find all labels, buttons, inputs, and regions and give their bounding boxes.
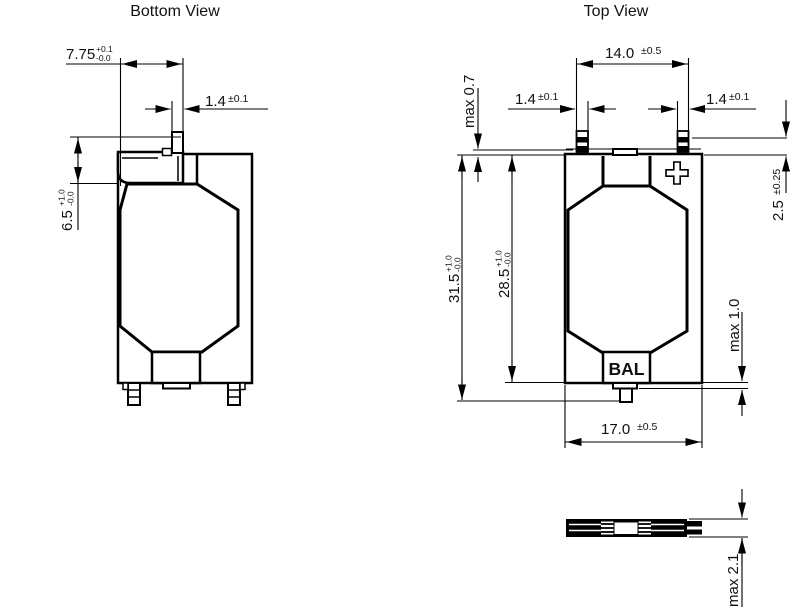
dim-label: 1.4 <box>205 93 226 110</box>
bv-tab-notch <box>163 149 172 156</box>
dim-label-rotated: 28.5 +1.0 -0.0 <box>494 250 514 298</box>
dim-label: 28.5 <box>496 269 513 298</box>
tv-body-outline <box>565 154 702 383</box>
dim-label: 31.5 <box>446 274 463 303</box>
dim-label-rotated: max 2.1 <box>725 554 742 607</box>
dim-label: max 2.1 <box>725 554 742 607</box>
bottom-view-title: Bottom View <box>130 3 220 20</box>
bal-pin <box>620 389 632 403</box>
dim-label: 1.4 <box>515 91 536 108</box>
dim-tolerance: ±0.1 <box>729 91 750 103</box>
side-view-group: max 2.1 <box>566 489 748 607</box>
bv-pin-left <box>128 383 140 405</box>
top-view-title: Top View <box>584 3 649 20</box>
dim-label-rotated: 2.5 ±0.25 <box>770 169 787 221</box>
dim-tolerance: ±0.1 <box>538 91 559 103</box>
bottom-view-group <box>118 132 252 405</box>
pin-stripe <box>678 146 689 152</box>
dim-label: 2.5 <box>770 200 787 221</box>
bv-seal-rect <box>152 352 200 383</box>
sv-pin-bottom <box>687 530 702 535</box>
bv-pin-notch-left <box>123 383 128 390</box>
dim-label: 14.0 <box>605 45 634 62</box>
dim-tolerance-minus: -0.0 <box>96 53 111 63</box>
dim-label: 1.4 <box>706 91 727 108</box>
dim-tolerance: ±0.5 <box>641 45 662 57</box>
bv-bottom-tab <box>163 383 190 389</box>
dim-tolerance: ±0.25 <box>771 169 783 195</box>
dim-label-rotated: max 0.7 <box>461 75 478 128</box>
dim-label-rotated: max 1.0 <box>726 299 743 352</box>
dim-label-rotated: 6.5 +1.0 -0.0 <box>57 189 77 231</box>
dim-label: 6.5 <box>59 210 76 231</box>
dim-tolerance-minus: -0.0 <box>503 252 513 267</box>
tv-top-tab <box>613 149 637 155</box>
technical-drawing-canvas: Bottom View Top View 7 <box>0 0 790 610</box>
dim-label: 17.0 <box>601 421 630 438</box>
bv-pin-notch-right <box>240 383 245 390</box>
bv-pin-right <box>228 383 240 405</box>
dim-label: 7.75 <box>66 46 95 63</box>
dim-label: max 0.7 <box>461 75 478 128</box>
bv-terminal-tab <box>118 152 183 183</box>
top-view-group: BAL <box>565 131 702 402</box>
sv-pin-top <box>687 521 702 527</box>
dim-tolerance: ±0.1 <box>228 93 249 105</box>
bv-body-outline <box>118 154 252 383</box>
dim-tolerance-minus: -0.0 <box>453 257 463 272</box>
dim-label-rotated: 31.5 +1.0 -0.0 <box>444 255 464 303</box>
dim-tolerance: ±0.5 <box>637 421 658 433</box>
bv-tab-pin <box>172 132 183 153</box>
drawing-page: Bottom View Top View 7 <box>0 0 790 610</box>
dim-tolerance-minus: -0.0 <box>66 191 76 206</box>
pin-stripe <box>577 137 589 143</box>
pin-stripe <box>678 137 689 143</box>
dim-label: max 1.0 <box>726 299 743 352</box>
pin-stripe <box>577 146 589 152</box>
sv-center-tab <box>614 522 638 535</box>
bal-label: BAL <box>609 359 645 379</box>
